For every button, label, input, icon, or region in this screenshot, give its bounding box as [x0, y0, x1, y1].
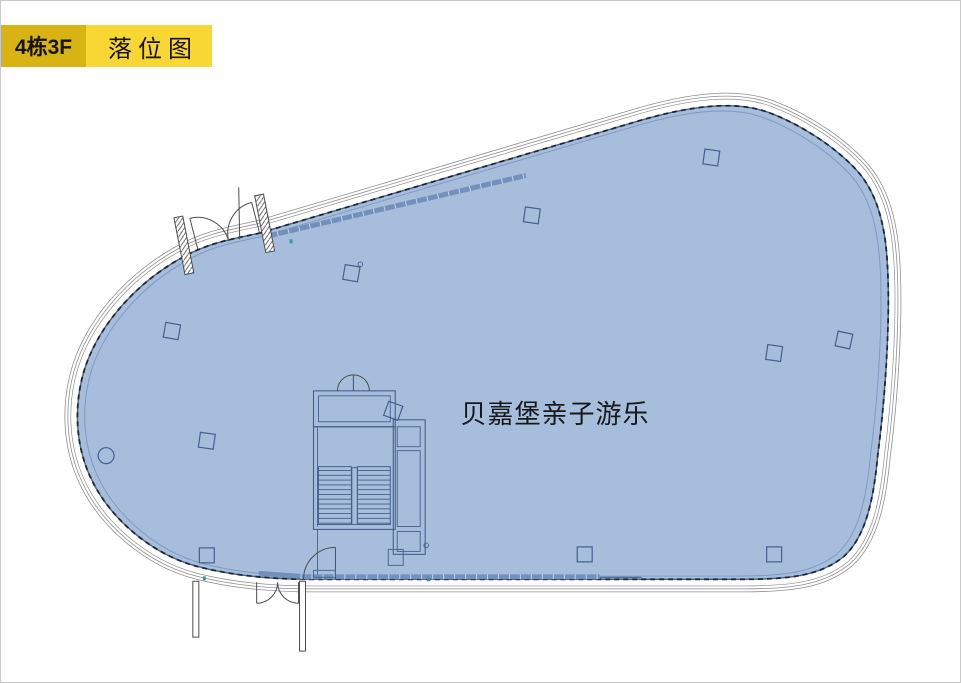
wall-section	[300, 581, 306, 651]
tenant-label: 贝嘉堡亲子游乐	[439, 394, 671, 431]
wall-section	[193, 581, 199, 637]
tick-mark	[290, 239, 293, 243]
building-tag: 4栋3F	[1, 25, 86, 67]
stair-treads-right	[357, 467, 390, 525]
header-tags: 4栋3F 落位图	[1, 25, 212, 67]
unit-area-shape	[77, 106, 888, 580]
stair-treads-left	[318, 467, 351, 525]
floorplan-svg	[1, 1, 960, 682]
tick-mark	[203, 576, 206, 580]
tick-mark	[427, 577, 430, 581]
curtain-wall-band-bottom-left	[259, 573, 301, 576]
diagram-title-tag: 落位图	[86, 25, 212, 67]
page-container: 4栋3F 落位图	[0, 0, 961, 683]
